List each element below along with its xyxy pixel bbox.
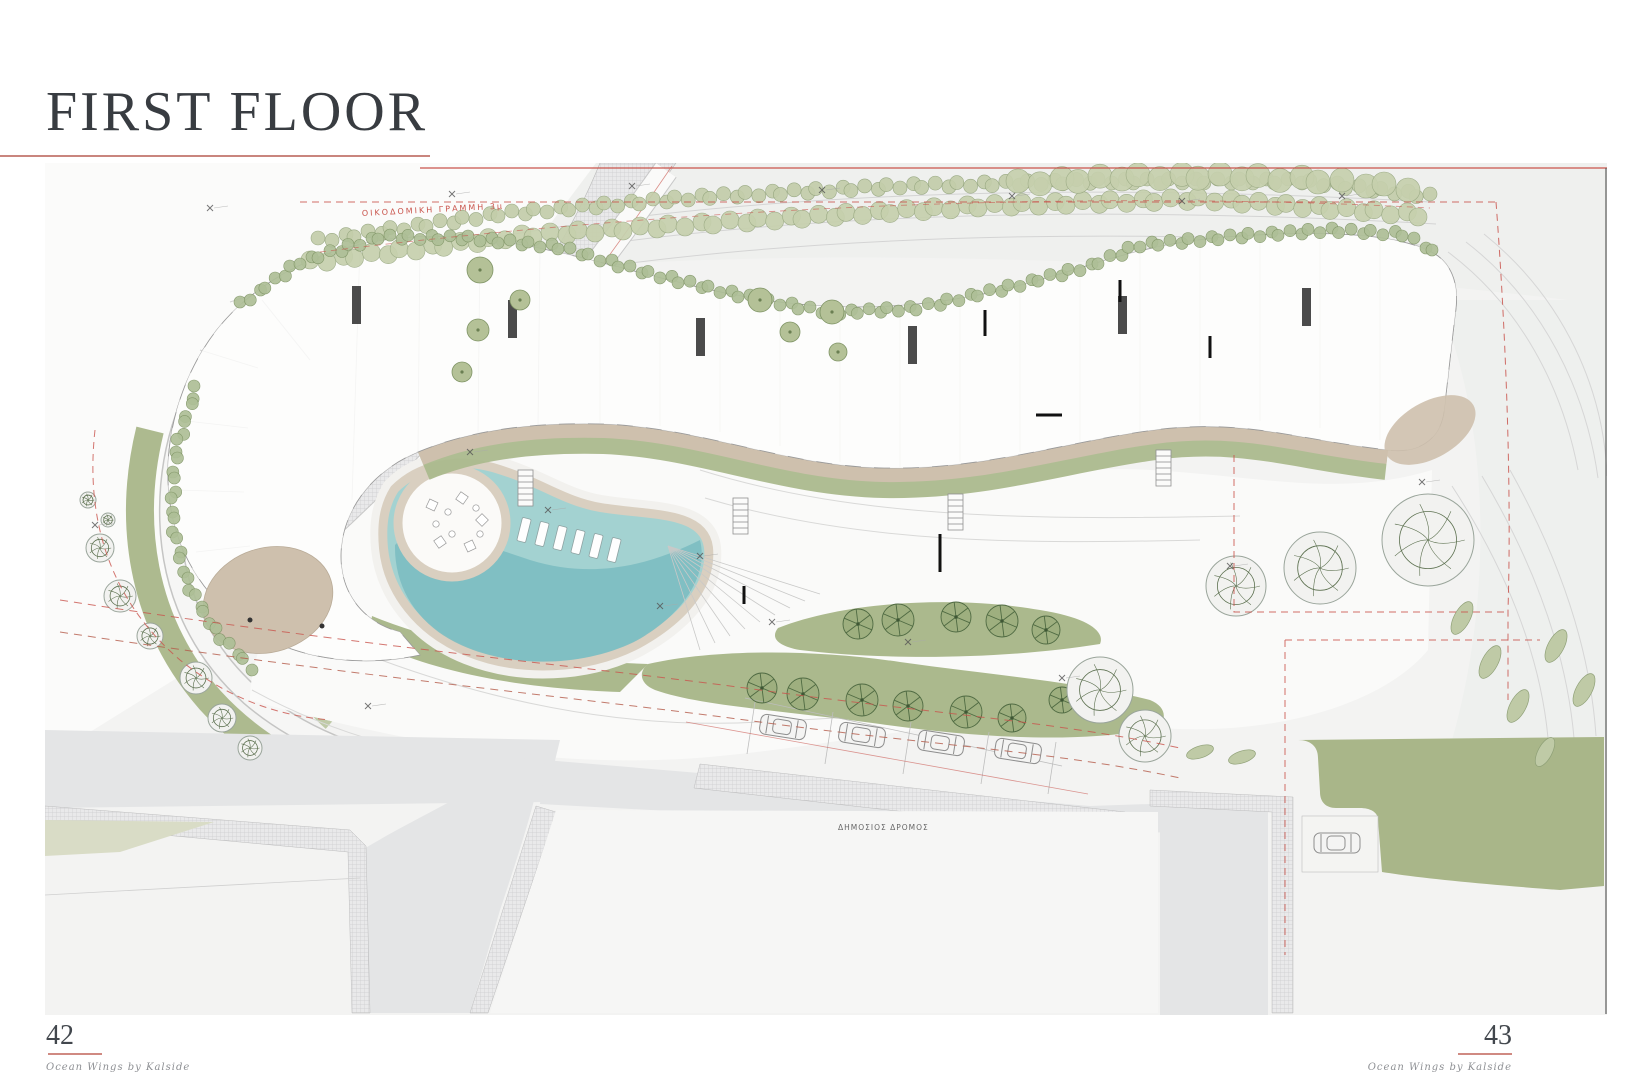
page-number-right: 43 xyxy=(1368,1022,1512,1050)
footer-brand-left: Ocean Wings by Kalside xyxy=(46,1062,190,1073)
page-number-rule-right xyxy=(1458,1053,1512,1055)
page-footer-left: 42 Ocean Wings by Kalside xyxy=(46,1022,190,1073)
page-number-left: 42 xyxy=(46,1022,190,1050)
footer-brand-right: Ocean Wings by Kalside xyxy=(1368,1062,1512,1073)
public-road-label: ΔΗΜΟΣΙΟΣ ΔΡΟΜΟΣ xyxy=(838,823,929,832)
site-plan: ΔΗΜΟΣΙΟΣ ΔΡΟΜΟΣ xyxy=(0,0,1649,1080)
page-number-rule-left xyxy=(48,1053,102,1055)
page-footer-right: 43 Ocean Wings by Kalside xyxy=(1368,1022,1512,1073)
brochure-page: { "page": { "title": "FIRST FLOOR", "pag… xyxy=(0,0,1649,1080)
pool-island xyxy=(398,469,506,577)
